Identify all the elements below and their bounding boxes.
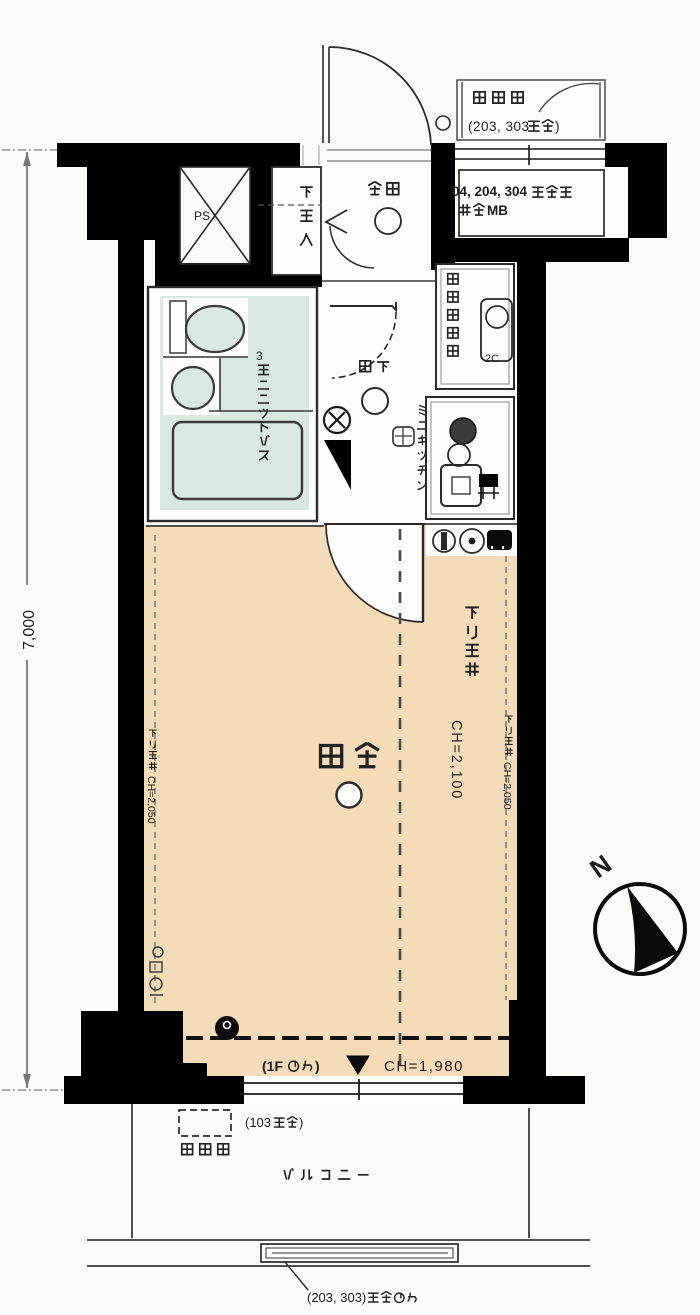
svg-text:2C: 2C <box>485 353 499 365</box>
svg-text:04, 204, 304: 04, 204, 304 <box>452 184 528 199</box>
svg-text:CH=1,980: CH=1,980 <box>384 1058 464 1075</box>
svg-text:(203, 303): (203, 303) <box>307 1290 366 1305</box>
svg-text:CH=2,050: CH=2,050 <box>145 776 157 824</box>
svg-text:(1F: (1F <box>262 1058 283 1074</box>
svg-text:MB: MB <box>487 203 508 218</box>
svg-text:CH=2,050: CH=2,050 <box>501 762 513 810</box>
svg-text:(103: (103 <box>245 1115 271 1130</box>
svg-text:3: 3 <box>256 349 263 363</box>
svg-text:7,000: 7,000 <box>21 610 38 650</box>
svg-text:(203, 303: (203, 303 <box>468 119 530 134</box>
svg-text:CH=2,100: CH=2,100 <box>448 720 464 800</box>
svg-text:): ) <box>555 119 560 134</box>
svg-text:): ) <box>299 1115 303 1130</box>
svg-text:): ) <box>315 1058 320 1074</box>
svg-text:PS: PS <box>194 209 210 223</box>
